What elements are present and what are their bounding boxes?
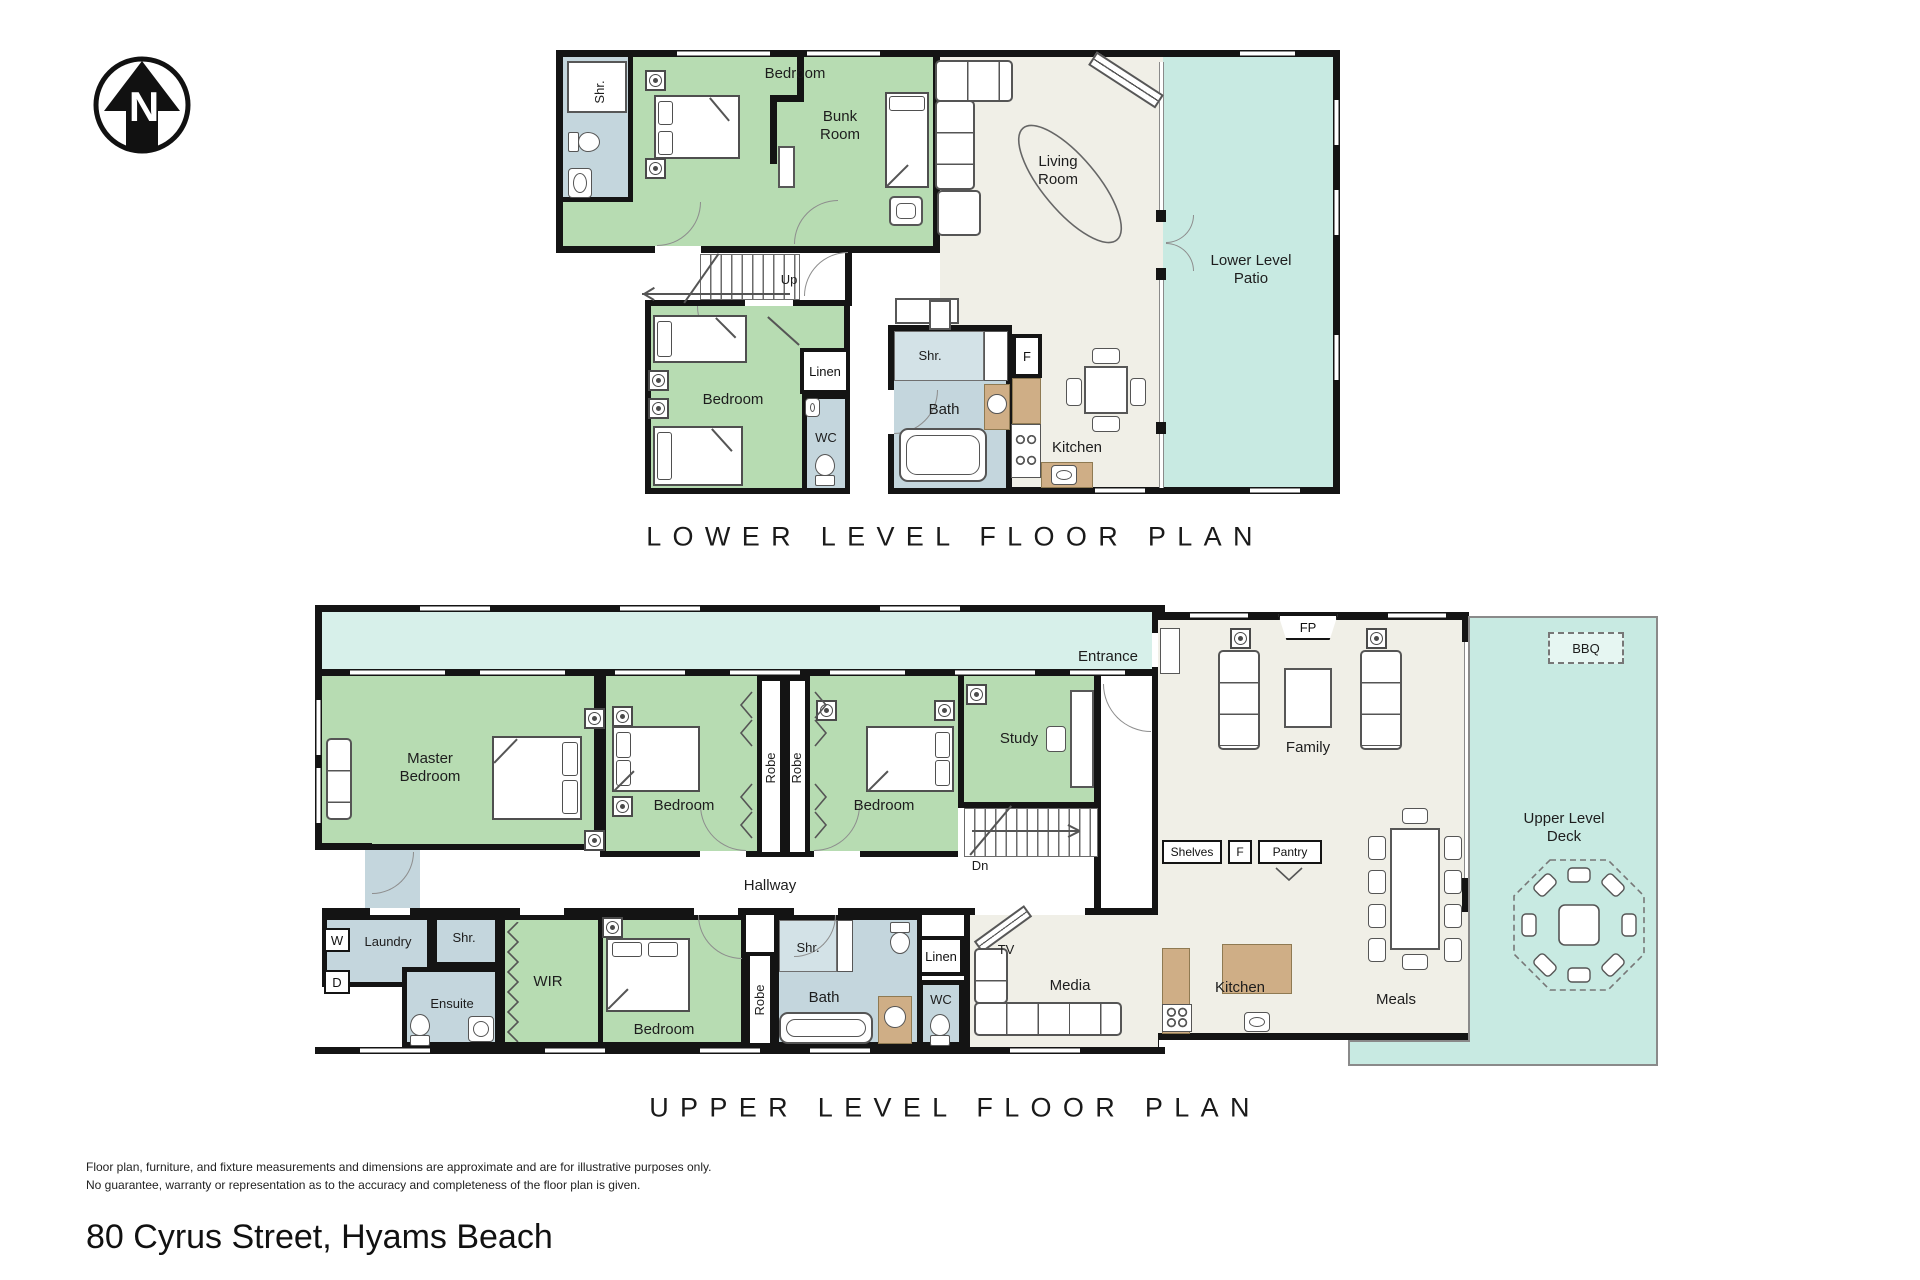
- room-label-bedroom3: Bedroom: [854, 797, 915, 815]
- room-label-wc: WC: [815, 430, 837, 446]
- downlight-icon: [584, 708, 605, 729]
- north-compass-icon: N: [92, 55, 192, 155]
- door-gap: [700, 851, 746, 857]
- window: [677, 51, 770, 56]
- window: [480, 670, 565, 675]
- window: [1070, 670, 1125, 675]
- pillow-icon: [889, 96, 925, 111]
- window: [1334, 100, 1339, 145]
- wardrobe-rail-icon: [506, 922, 520, 1042]
- entry-step: [1160, 628, 1180, 674]
- sink-icon: [568, 168, 592, 198]
- stair-arrow-line: [972, 830, 1080, 832]
- door-gap: [370, 908, 410, 915]
- window: [1334, 190, 1339, 235]
- chair-icon: [1402, 954, 1428, 970]
- washer: W: [324, 928, 350, 952]
- bifold-door-icon: [738, 690, 754, 748]
- room-label-bedroom4: Bedroom: [634, 1021, 695, 1039]
- stairs-label-up: Up: [781, 272, 798, 288]
- pillow-icon: [657, 321, 672, 357]
- downlight-icon: [648, 398, 669, 419]
- basin-icon: [884, 1006, 906, 1028]
- deck-strip: [1348, 1040, 1470, 1066]
- window: [955, 670, 1035, 675]
- downlight-icon: [645, 158, 666, 179]
- window: [316, 768, 321, 823]
- room-label-study: Study: [1000, 730, 1038, 748]
- room-upper-balcony-strip: [322, 612, 1158, 669]
- window: [420, 606, 490, 611]
- chair-icon: [1444, 904, 1462, 928]
- wall-segment: [1156, 268, 1166, 280]
- property-address: 80 Cyrus Street, Hyams Beach: [86, 1218, 553, 1257]
- window: [1095, 488, 1145, 493]
- window: [545, 1048, 605, 1053]
- kitchen-counter: [1012, 378, 1041, 424]
- pantry-door-icon: [1274, 866, 1304, 882]
- compass-n-label: N: [129, 83, 159, 130]
- room-label-ensuite: Ensuite: [430, 996, 473, 1012]
- toilet-icon: [408, 1014, 432, 1046]
- pillow-icon: [612, 942, 642, 957]
- stairs-label-dn: Dn: [972, 858, 989, 874]
- room-label-shower: Shr.: [592, 80, 608, 103]
- wall-segment: [1156, 422, 1166, 434]
- pillow-icon: [657, 432, 672, 480]
- bifold-door-icon: [813, 782, 829, 840]
- chair-icon: [1444, 938, 1462, 962]
- window: [700, 1048, 760, 1053]
- window: [830, 670, 905, 675]
- room-label-robe1: Robe: [763, 752, 779, 783]
- desk-icon: [1070, 690, 1094, 788]
- kitchen-sink-icon: [1051, 465, 1077, 485]
- window: [1159, 276, 1164, 424]
- window: [1334, 335, 1339, 380]
- window: [360, 1048, 430, 1053]
- door-gap: [814, 851, 860, 857]
- toilet-icon: [568, 130, 600, 154]
- chair-icon: [1130, 378, 1146, 406]
- chair-icon: [1368, 938, 1386, 962]
- chair-icon: [1368, 904, 1386, 928]
- room-label-kitchen-upper: Kitchen: [1215, 979, 1265, 997]
- chair-icon: [1066, 378, 1082, 406]
- bbq: BBQ: [1548, 632, 1624, 664]
- sofa-icon: [935, 100, 975, 190]
- window: [316, 700, 321, 755]
- door-gap: [694, 908, 738, 915]
- toilet-icon: [888, 922, 912, 954]
- room-label-robe2: Robe: [789, 752, 805, 783]
- downlight-icon: [612, 796, 633, 817]
- wall-segment: [770, 102, 777, 164]
- window: [1159, 62, 1164, 210]
- window: [620, 606, 700, 611]
- sofa-icon: [974, 1002, 1122, 1036]
- basin-icon: [987, 394, 1007, 414]
- room-label-bedroom: Bedroom: [703, 391, 764, 409]
- chair-icon: [1092, 348, 1120, 364]
- room-label-shr2-upper: Shr.: [796, 940, 819, 956]
- window: [1010, 1048, 1080, 1053]
- stove-icon: [1011, 424, 1041, 478]
- entry-door-arc-icon: [1103, 684, 1151, 732]
- fridge: F: [1012, 334, 1042, 378]
- disclaimer-line2: No guarantee, warranty or representation…: [86, 1178, 640, 1192]
- shelves: Shelves: [1162, 840, 1222, 864]
- sofa-icon: [326, 738, 352, 820]
- bathtub-icon: [899, 428, 987, 482]
- door-arc-icon: [804, 252, 848, 296]
- room-label-hallway: Hallway: [744, 877, 797, 895]
- wall-segment: [315, 843, 372, 850]
- coffee-table-icon: [1284, 668, 1332, 728]
- pillow-icon: [935, 760, 950, 786]
- window: [350, 670, 445, 675]
- pillow-icon: [562, 742, 578, 776]
- door-gap: [745, 300, 793, 306]
- room-label-master-bedroom: Master Bedroom: [400, 750, 461, 786]
- kitchen-sink-icon: [1244, 1012, 1270, 1032]
- room-label-wir: WIR: [533, 973, 562, 991]
- sofa-icon: [1218, 650, 1260, 750]
- window: [810, 1048, 870, 1053]
- dining-table-icon: [1084, 366, 1128, 414]
- room-label-bath-upper: Bath: [809, 989, 840, 1007]
- chair-icon: [1368, 836, 1386, 860]
- room-label-shr1: Shr.: [452, 930, 475, 946]
- dryer: D: [324, 970, 350, 994]
- pantry: Pantry: [1258, 840, 1322, 864]
- pillow-icon: [658, 101, 673, 125]
- window: [615, 670, 685, 675]
- dining-table-icon: [1390, 828, 1440, 950]
- downlight-icon: [1230, 628, 1251, 649]
- tv-label: TV: [998, 942, 1015, 958]
- linen-closet-upper: Linen: [918, 936, 964, 976]
- shelf-icon: [778, 146, 795, 188]
- downlight-icon: [966, 684, 987, 705]
- stove-icon: [1162, 1004, 1192, 1032]
- window: [1388, 613, 1446, 618]
- room-label-deck: Upper Level Deck: [1524, 810, 1605, 846]
- chair-icon: [1444, 870, 1462, 894]
- bifold-door-icon: [813, 690, 829, 748]
- room-label-living-room: Living Room: [1038, 153, 1078, 189]
- sink-icon: [468, 1016, 494, 1042]
- chair-icon: [1444, 836, 1462, 860]
- room-label-bedroom: Bedroom: [765, 65, 826, 83]
- pillow-icon: [616, 732, 631, 758]
- sofa-icon: [1360, 650, 1402, 750]
- window: [1159, 428, 1164, 488]
- window: [1240, 51, 1295, 56]
- fridge-upper: F: [1228, 840, 1252, 864]
- shower-tray-icon: [837, 920, 853, 972]
- cabinet-icon: [929, 300, 951, 330]
- downlight-icon: [645, 70, 666, 91]
- room-label-wc-upper: WC: [930, 992, 952, 1008]
- downlight-icon: [584, 830, 605, 851]
- room-label-bath: Bath: [929, 401, 960, 419]
- ottoman-icon: [937, 190, 981, 236]
- outdoor-table-icon: [1506, 852, 1652, 998]
- window: [1190, 613, 1248, 618]
- downlight-icon: [934, 700, 955, 721]
- wall-segment: [770, 95, 804, 102]
- nightstand-inner: [896, 203, 916, 219]
- wall-segment: [1156, 210, 1166, 222]
- wall-segment: [1094, 676, 1101, 908]
- lower-plan-title: LOWER LEVEL FLOOR PLAN: [646, 522, 1264, 553]
- toilet-icon: [813, 454, 837, 486]
- window: [1250, 488, 1300, 493]
- window: [730, 670, 800, 675]
- chair-icon: [1368, 870, 1386, 894]
- room-label-media: Media: [1050, 977, 1091, 995]
- linen-closet: Linen: [800, 348, 850, 394]
- door-gap: [794, 908, 838, 915]
- room-label-bedroom2: Bedroom: [654, 797, 715, 815]
- room-label-robe3: Robe: [752, 984, 768, 1015]
- shower-tray-icon: [984, 331, 1008, 381]
- room-label-shower2: Shr.: [918, 348, 941, 364]
- chair-icon: [1402, 808, 1428, 824]
- upper-plan-title: UPPER LEVEL FLOOR PLAN: [649, 1093, 1261, 1124]
- pillow-icon: [562, 780, 578, 814]
- window: [880, 606, 960, 611]
- pillow-icon: [648, 942, 678, 957]
- room-label-meals: Meals: [1376, 991, 1416, 1009]
- sofa-icon: [935, 60, 1013, 102]
- sink-icon: [805, 398, 820, 417]
- door-gap: [520, 908, 564, 915]
- toilet-icon: [928, 1014, 952, 1046]
- room-label-patio: Lower Level Patio: [1211, 252, 1292, 288]
- room-label-entrance: Entrance: [1078, 648, 1138, 666]
- stair-arrow-line: [642, 293, 790, 295]
- disclaimer-line1: Floor plan, furniture, and fixture measu…: [86, 1160, 711, 1174]
- room-label-bunk-room: Bunk Room: [820, 108, 860, 144]
- bifold-door-icon: [738, 782, 754, 840]
- room-label-kitchen: Kitchen: [1052, 439, 1102, 457]
- bathtub-icon: [779, 1012, 873, 1044]
- pillow-icon: [935, 732, 950, 758]
- chair-icon: [1046, 726, 1066, 752]
- downlight-icon: [1366, 628, 1387, 649]
- downlight-icon: [648, 370, 669, 391]
- window: [807, 51, 880, 56]
- downlight-icon: [602, 917, 623, 938]
- fireplace: FP: [1278, 614, 1338, 640]
- pillow-icon: [658, 131, 673, 155]
- floor-plan-page: { "meta": { "compass_n": "N", "address":…: [0, 0, 1920, 1280]
- room-label-laundry: Laundry: [365, 934, 412, 950]
- room-label-family: Family: [1286, 739, 1330, 757]
- downlight-icon: [612, 706, 633, 727]
- door-gap: [655, 246, 701, 253]
- chair-icon: [1092, 416, 1120, 432]
